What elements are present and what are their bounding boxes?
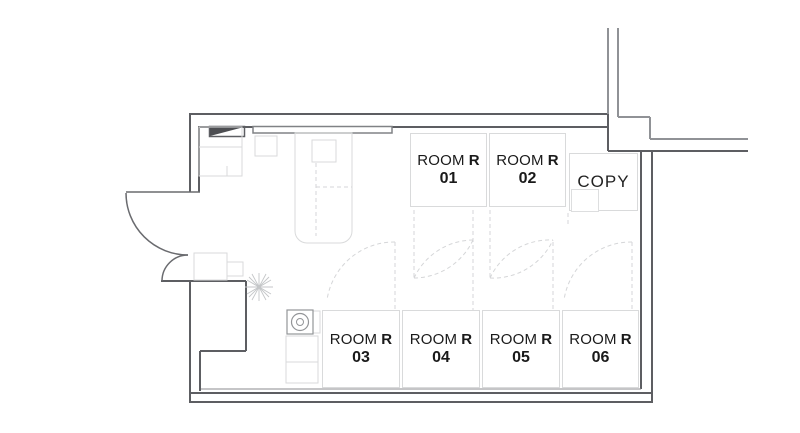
copy-room-sub-box — [571, 189, 599, 212]
partition-walls — [161, 281, 246, 391]
entrance-door — [126, 192, 200, 281]
plant — [245, 273, 273, 301]
room-04-number: 04 — [432, 349, 450, 367]
room-03-name: ROOMR — [330, 331, 393, 348]
room-04: ROOMR 04 — [402, 310, 480, 388]
room-05-name: ROOMR — [490, 331, 553, 348]
room-06-name: ROOMR — [569, 331, 632, 348]
room-02-number: 02 — [519, 170, 537, 188]
room-03-number: 03 — [352, 349, 370, 367]
floor-plan: ROOMR 01 ROOMR 02 COPY ROOMR 03 ROOMR 04… — [0, 0, 800, 433]
room-06: ROOMR 06 — [562, 310, 639, 388]
floor-plan-linework — [0, 0, 800, 433]
room-05: ROOMR 05 — [482, 310, 560, 388]
room-05-number: 05 — [512, 349, 530, 367]
room-04-name: ROOMR — [410, 331, 473, 348]
stove — [287, 310, 313, 334]
room-03: ROOMR 03 — [322, 310, 400, 388]
corridor-walls — [608, 28, 748, 139]
room-02-name: ROOMR — [496, 152, 559, 169]
room-01: ROOMR 01 — [410, 133, 487, 207]
room-01-number: 01 — [440, 170, 458, 188]
room-01-name: ROOMR — [417, 152, 480, 169]
wall-wedge — [210, 127, 245, 137]
room-06-number: 06 — [592, 349, 610, 367]
counter-bar — [253, 127, 392, 134]
room-02: ROOMR 02 — [489, 133, 566, 207]
